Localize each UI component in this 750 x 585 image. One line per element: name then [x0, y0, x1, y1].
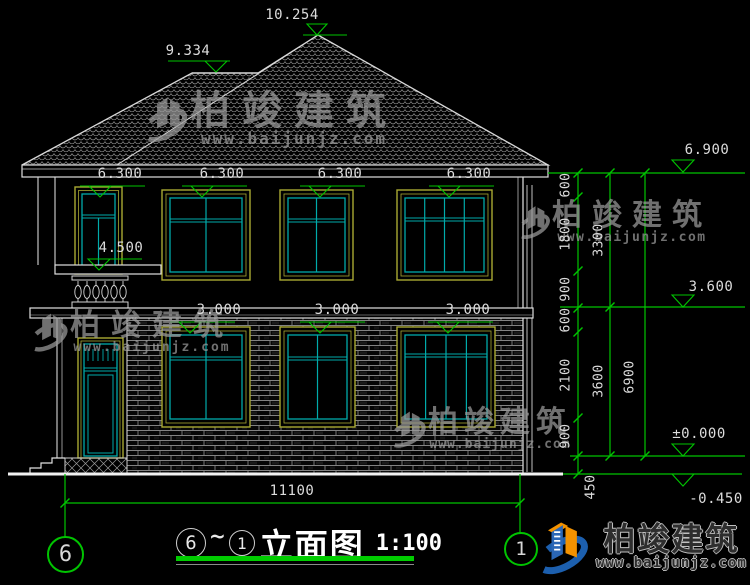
dim-2100: 2100 [559, 358, 574, 391]
level-peak: 10.254 [265, 7, 319, 23]
level-eave-4: 6.300 [447, 166, 492, 182]
level-eave-1: 6.300 [98, 166, 143, 182]
title-underline-green [176, 556, 414, 561]
window-1f-2 [280, 327, 355, 427]
watermark-bottom: 柏竣建筑 www.baijunjz.com [386, 401, 572, 457]
level-eave-3: 6.300 [318, 166, 363, 182]
brand-logo-text: 柏竣建筑 [603, 523, 739, 557]
level-right-top: 6.900 [685, 142, 730, 158]
level-right-mid: 3.600 [689, 279, 734, 295]
grid-bubble-1: 1 [504, 532, 538, 566]
brand-logo-url: www.baijunjz.com [596, 556, 747, 571]
dim-450: 450 [584, 475, 599, 500]
level-balcony: 4.500 [99, 240, 144, 256]
watermark-roof: 柏竣建筑 www.baijunjz.com [138, 86, 398, 152]
dim-900b: 900 [559, 424, 574, 449]
watermark-logo-icon [514, 195, 552, 249]
balcony [55, 265, 161, 308]
watermark-url: www.baijunjz.com [557, 231, 706, 244]
level-right-below: -0.450 [689, 491, 743, 507]
dim-600b: 600 [559, 308, 574, 333]
window-2f-3 [280, 190, 353, 280]
watermark-logo-icon [26, 303, 70, 361]
level-floor1-2: 3.000 [315, 302, 360, 318]
dim-600a: 600 [559, 173, 574, 198]
watermark-url: www.baijunjz.com [201, 131, 387, 147]
title-underline-gray [176, 564, 414, 565]
balcony-door [75, 187, 122, 274]
brand-logo: 柏竣建筑 www.baijunjz.com [534, 515, 747, 579]
dim-6900: 6900 [623, 360, 638, 393]
dim-1800: 1800 [559, 217, 574, 250]
dim-total-width: 11100 [270, 483, 315, 499]
level-floor1-1: 3.000 [197, 302, 242, 318]
dim-3600: 3600 [592, 364, 607, 397]
title-grid-from: 6 [176, 528, 206, 558]
level-floor1-3: 3.000 [446, 302, 491, 318]
level-right-zero: ±0.000 [672, 426, 726, 442]
title-tilde: ~ [209, 524, 226, 548]
window-2f-2 [162, 190, 250, 280]
watermark-brand: 柏竣建筑 [428, 408, 572, 438]
watermark-logo-icon [386, 401, 428, 457]
watermark-url: www.baijunjz.com [429, 438, 570, 451]
cad-elevation-canvas: 柏竣建筑 www.baijunjz.com 柏竣建筑 www.baijunjz.… [0, 0, 750, 585]
window-2f-4 [397, 190, 492, 280]
level-ridge: 9.334 [166, 43, 211, 59]
watermark-brand: 柏竣建筑 [552, 201, 712, 231]
dim-900a: 900 [559, 277, 574, 302]
watermark-right: 柏竣建筑 www.baijunjz.com [514, 195, 712, 249]
title-grid-to: 1 [229, 530, 255, 556]
title-scale: 1:100 [376, 531, 442, 556]
watermark-logo-icon [138, 86, 190, 152]
watermark-brand: 柏竣建筑 [190, 91, 398, 131]
grid-bubble-6: 6 [47, 536, 84, 573]
dim-3300: 3300 [592, 223, 607, 256]
watermark-url: www.baijunjz.com [73, 341, 230, 354]
level-eave-2: 6.300 [200, 166, 245, 182]
brand-logo-icon [534, 515, 590, 579]
